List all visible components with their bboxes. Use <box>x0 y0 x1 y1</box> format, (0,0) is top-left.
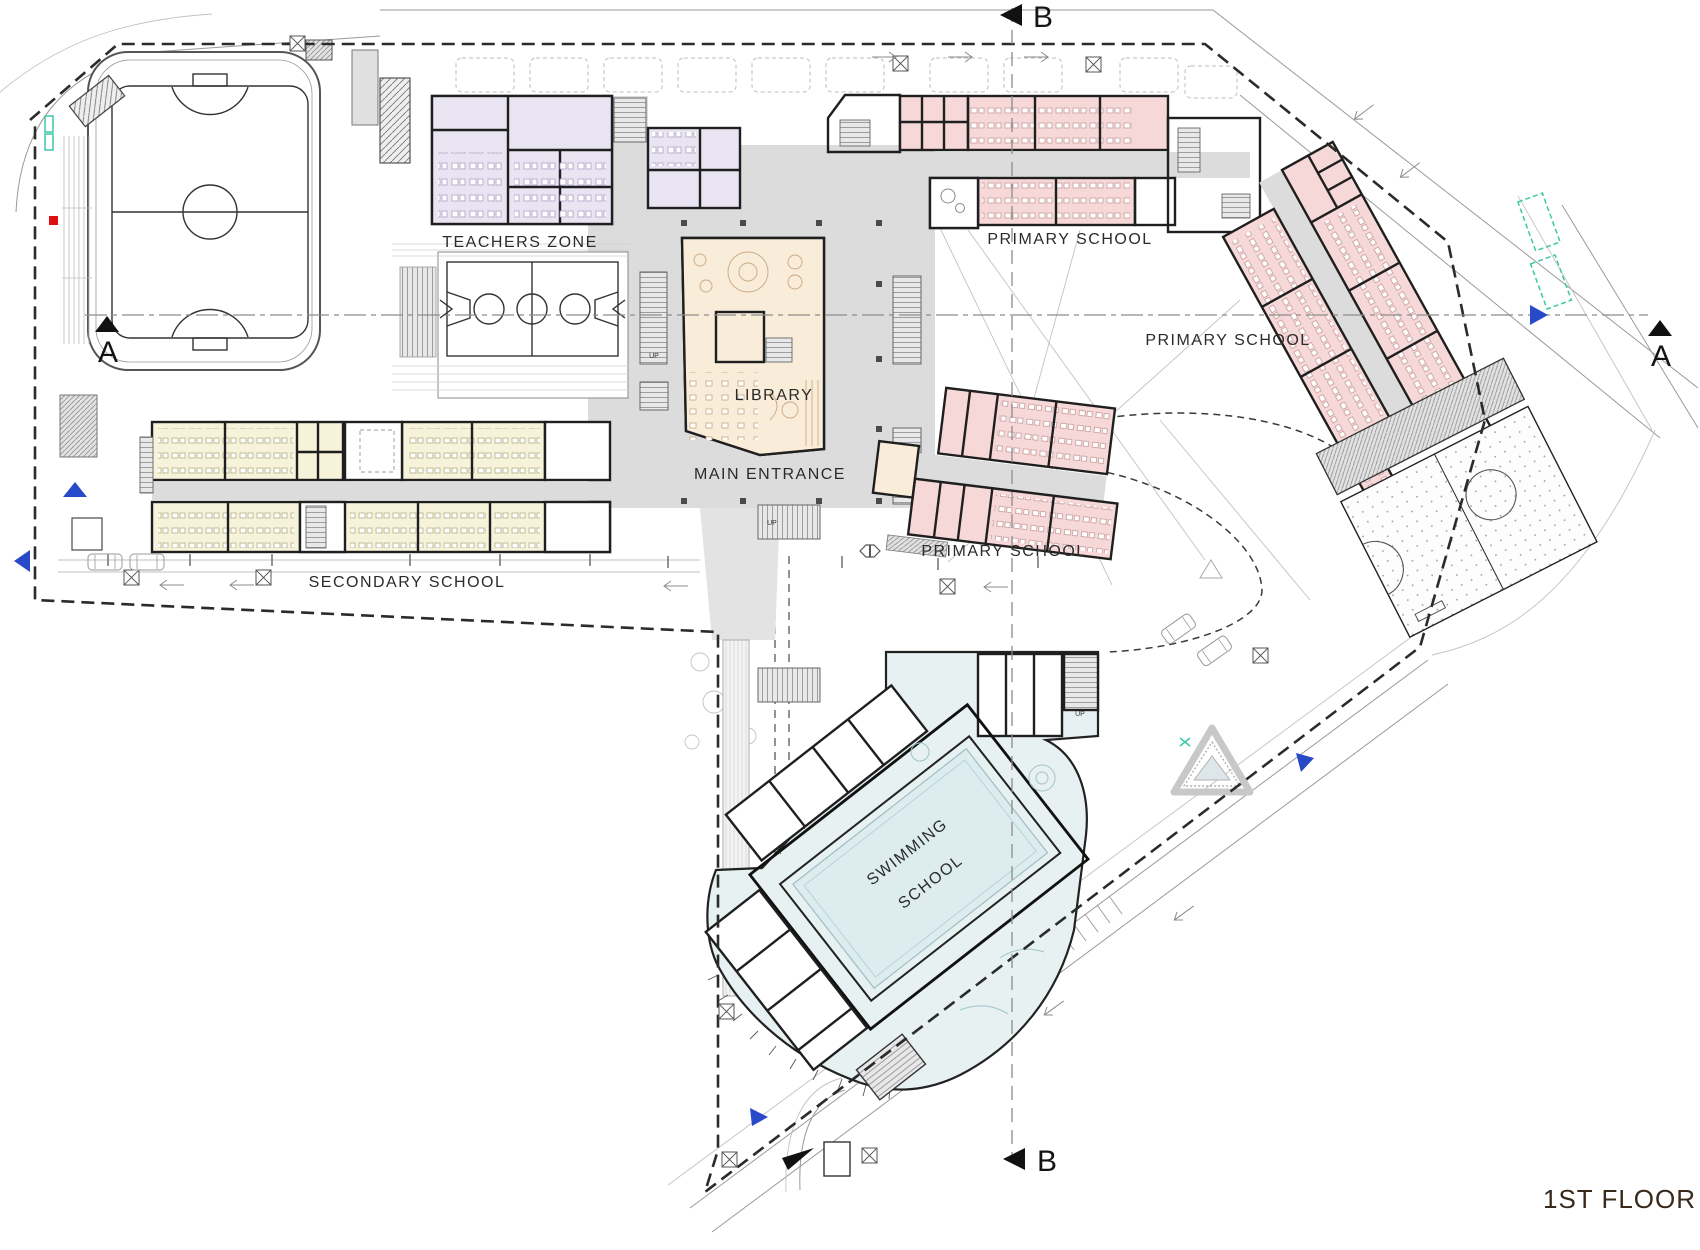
up-label-3: UP <box>1075 711 1085 718</box>
teal-zone-1 <box>1518 193 1560 251</box>
blue-arrow-plaza <box>1296 753 1314 772</box>
teal-marker-1 <box>45 116 53 132</box>
hydrant-icon <box>860 545 880 557</box>
sports-hall <box>62 52 320 370</box>
red-marker <box>49 216 58 225</box>
blue-arrow-bottom <box>750 1108 768 1126</box>
section-b-letter-top: B <box>1033 1 1053 34</box>
section-b-arrow-bottom <box>1003 1148 1025 1170</box>
gym-hall <box>392 244 630 398</box>
side-ramp <box>60 395 97 457</box>
teachers-zone-label: TEACHERS ZONE <box>442 234 598 251</box>
primary-school-top-label: PRIMARY SCHOOL <box>987 231 1152 248</box>
section-b-letter-bottom: B <box>1037 1145 1057 1178</box>
teal-zone-2 <box>1531 255 1572 309</box>
blue-arrow-left-edge <box>14 550 30 572</box>
section-a-letter-right: A <box>1651 340 1671 373</box>
section-a-letter-left: A <box>98 336 118 369</box>
library-label: LIBRARY <box>735 387 814 404</box>
section-a-arrow-right <box>1648 320 1672 336</box>
up-label-2: UP <box>767 520 777 527</box>
floor-plan-drawing: SWIMMING SCHOOL A A <box>0 0 1700 1250</box>
primary-school-right-label: PRIMARY SCHOOL <box>1145 332 1310 349</box>
teal-marker-2 <box>45 134 53 150</box>
section-b-arrow-top <box>1000 4 1022 26</box>
blue-arrow-right-road <box>1530 305 1548 325</box>
secondary-school-label: SECONDARY SCHOOL <box>309 574 506 591</box>
teachers-zone <box>432 96 740 224</box>
up-label-1: UP <box>649 353 659 360</box>
library-block <box>682 238 824 455</box>
exterior-ramp <box>380 78 410 163</box>
page-title: 1ST FLOOR <box>1543 1184 1696 1214</box>
playground-triangle <box>1174 728 1250 792</box>
main-entrance-label: MAIN ENTRANCE <box>694 466 846 483</box>
teachers-stair <box>614 98 646 142</box>
floor-plan: SWIMMING SCHOOL A A <box>0 0 1700 1250</box>
teal-cross <box>1180 738 1190 746</box>
blue-arrow-secondary <box>63 482 87 497</box>
primary-school-mid-label: PRIMARY SCHOOL <box>921 543 1086 560</box>
